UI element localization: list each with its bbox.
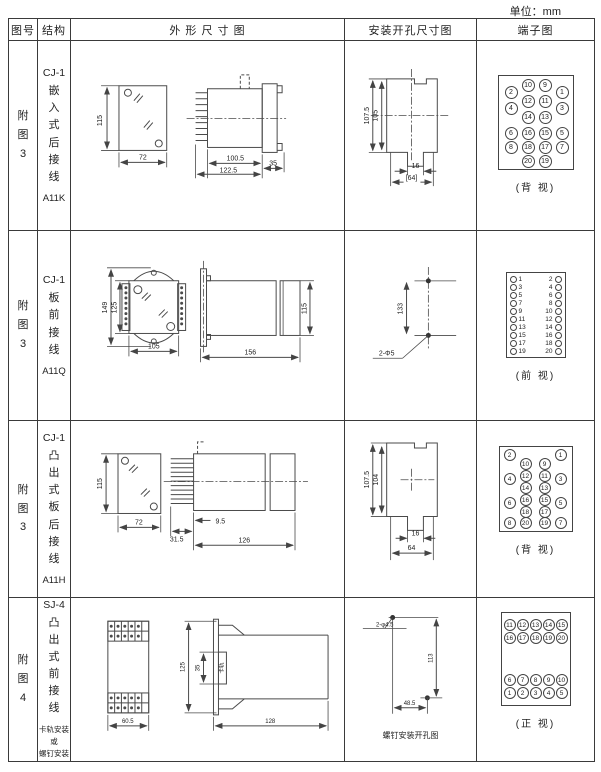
terminal-17: 17 <box>539 141 552 154</box>
side-view: 9.5 31.5 126 <box>164 442 308 550</box>
header-terminal: 端子图 <box>477 19 594 41</box>
mount-note: 卡轨安装 或 螺钉安装 <box>39 724 69 760</box>
side-view: 125 卡轨 35 128 <box>181 619 328 731</box>
front-view: 115 72 <box>97 454 161 533</box>
terminal-14: 14 <box>520 482 532 494</box>
dim-overall-width: 64 <box>408 545 416 552</box>
terminal-10: 10 <box>556 674 568 686</box>
dim-notch-width: 16 <box>412 163 420 170</box>
outline-drawing-a11k: 115 72 <box>71 41 344 230</box>
terminal-12: 12 <box>522 95 535 108</box>
terminal-4: 4 <box>504 473 516 485</box>
header-outline: 外 形 尺 寸 图 <box>71 19 345 41</box>
front-view: 149 125 105 <box>102 268 186 357</box>
terminal-cell-row3: 2110912114314131615651817820197 (背 视) <box>477 421 594 598</box>
front-view: 60.5 <box>108 621 149 731</box>
terminal-20: 20 <box>522 155 535 168</box>
terminal-diagram-front-view: 1234567891011121314151617181920 <box>506 272 566 358</box>
fig-no-row4: 附 图 4 <box>9 598 38 761</box>
terminal-pair: 56 <box>510 291 562 299</box>
dim-cutout-outer-h: 107.5 <box>364 471 371 489</box>
install-drawing-a11k: 107.5 105 16 [64] <box>345 41 476 230</box>
terminal-pair: 1516 <box>510 331 562 339</box>
outline-cell-row4: 60.5 125 卡轨 35 <box>71 598 345 761</box>
terminal-18: 18 <box>522 141 535 154</box>
terminal-9: 9 <box>543 674 555 686</box>
rail-label: 卡轨 <box>217 662 225 673</box>
terminal-20: 20 <box>556 632 568 644</box>
fig-no-row3: 附 图 3 <box>9 421 38 598</box>
terminal-19: 19 <box>539 517 551 529</box>
model-label: SJ-4 <box>43 599 65 611</box>
outline-drawing-sj4: 60.5 125 卡轨 35 <box>71 598 344 761</box>
terminal-4: 4 <box>543 687 555 699</box>
datasheet-page: 单位：mm 图号 结构 外 形 尺 寸 图 安装开孔尺寸图 端子图 附 图 3 … <box>0 0 601 772</box>
terminal-13: 13 <box>530 619 542 631</box>
terminal-3: 3 <box>530 687 542 699</box>
fig-no-row2: 附 图 3 <box>9 231 38 421</box>
dim-front-width: 105 <box>148 343 160 350</box>
terminal-15: 15 <box>539 494 551 506</box>
model-label: CJ-1 <box>43 274 65 286</box>
outline-cell-row2: 149 125 105 <box>71 231 345 421</box>
terminal-2: 2 <box>505 86 518 99</box>
terminal-2: 2 <box>504 449 516 461</box>
terminal-18: 18 <box>530 632 542 644</box>
outline-drawing-a11q: 149 125 105 <box>71 231 344 420</box>
terminal-pair: 910 <box>510 307 562 315</box>
dim-side-height: 115 <box>301 303 308 314</box>
terminal-5: 5 <box>556 687 568 699</box>
terminal-8: 8 <box>505 141 518 154</box>
hole-label: 2-Φ5 <box>379 350 395 357</box>
terminal-cell-row4: 1112131415161718192067891012345 (正 视) <box>477 598 594 761</box>
terminal-19: 19 <box>543 632 555 644</box>
install-cell-row3: 107.5 104 16 64 <box>345 421 477 598</box>
install-drawing-a11q: 133 2-Φ5 <box>345 231 476 420</box>
terminal-1: 1 <box>555 449 567 461</box>
structure-row3: CJ-1 凸 出 式 板 后 接 线 A11H <box>38 421 71 598</box>
terminal-pair: 34 <box>510 283 562 291</box>
dim-front-height: 115 <box>97 115 104 126</box>
outline-drawing-a11h: 115 72 9 <box>71 421 344 597</box>
structure-label: 凸 出 式 板 后 接 线 <box>49 448 60 567</box>
dim-front-width: 72 <box>135 519 143 526</box>
dim-hole-spacing: 133 <box>398 303 405 315</box>
dim-front-width: 60.5 <box>122 719 134 725</box>
dim-front-inner-h: 125 <box>111 302 118 314</box>
terminal-17: 17 <box>517 632 529 644</box>
dim-cutout-inner-h: 105 <box>373 110 380 122</box>
terminal-5: 5 <box>555 497 567 509</box>
dim-side-gap: 9.5 <box>215 518 225 525</box>
terminal-diagram-back-view: 1092112114314136161558181772019 <box>498 75 574 170</box>
dim-front-outer-h: 149 <box>102 302 109 314</box>
terminal-14: 14 <box>522 111 535 124</box>
terminal-caption: (背 视) <box>516 541 555 556</box>
outline-cell-row1: 115 72 <box>71 41 345 231</box>
dim-front-width: 72 <box>139 154 147 161</box>
side-view: 100.5 122.5 35 <box>187 75 286 178</box>
dim-side-inner: 35 <box>196 664 202 671</box>
terminal-pair: 12 <box>510 275 562 283</box>
terminal-7: 7 <box>555 517 567 529</box>
terminal-20: 20 <box>520 517 532 529</box>
terminal-8: 8 <box>504 517 516 529</box>
code-label: A11H <box>42 575 65 586</box>
dim-side-body: 100.5 <box>227 155 245 162</box>
code-label: A11Q <box>42 366 66 377</box>
terminal-pair: 78 <box>510 299 562 307</box>
terminal-11: 11 <box>539 470 551 482</box>
terminal-diagram-back-view: 2110912114314131615651817820197 <box>499 446 573 532</box>
terminal-11: 11 <box>504 619 516 631</box>
terminal-15: 15 <box>539 127 552 140</box>
terminal-13: 13 <box>539 111 552 124</box>
header-install: 安装开孔尺寸图 <box>345 19 477 41</box>
terminal-10: 10 <box>522 79 535 92</box>
terminal-12: 12 <box>520 470 532 482</box>
terminal-9: 9 <box>539 79 552 92</box>
terminal-6: 6 <box>504 497 516 509</box>
structure-label: 嵌 入 式 后 接 线 <box>49 83 60 185</box>
spec-table: 图号 结构 外 形 尺 寸 图 安装开孔尺寸图 端子图 附 图 3 CJ-1 嵌… <box>8 18 595 762</box>
terminal-16: 16 <box>504 632 516 644</box>
terminal-7: 7 <box>517 674 529 686</box>
terminal-10: 10 <box>520 458 532 470</box>
structure-row4: SJ-4 凸 出 式 前 接 线 卡轨安装 或 螺钉安装 <box>38 598 71 761</box>
model-label: CJ-1 <box>43 432 65 444</box>
unit-label: 单位：mm <box>510 3 561 19</box>
terminal-diagram-front-view: 1112131415161718192067891012345 <box>501 612 571 706</box>
terminal-2: 2 <box>517 687 529 699</box>
dim-notch-width: 16 <box>412 530 420 537</box>
dim-side-body: 126 <box>238 537 250 544</box>
terminal-caption: (前 视) <box>516 367 555 382</box>
terminal-19: 19 <box>539 155 552 168</box>
dim-horizontal: 48.5 <box>404 701 416 707</box>
terminal-8: 8 <box>530 674 542 686</box>
dim-side-total: 122.5 <box>220 167 238 174</box>
header-structure: 结构 <box>38 19 71 41</box>
terminal-12: 12 <box>517 619 529 631</box>
outline-cell-row3: 115 72 9 <box>71 421 345 598</box>
terminal-1: 1 <box>556 86 569 99</box>
terminal-4: 4 <box>505 102 518 115</box>
terminal-3: 3 <box>556 102 569 115</box>
hole-label: 2-φ4.5 <box>376 622 394 628</box>
terminal-16: 16 <box>520 494 532 506</box>
fig-no-row1: 附 图 3 <box>9 41 38 231</box>
dim-side-length: 156 <box>244 349 256 356</box>
front-view: 115 72 <box>97 86 167 168</box>
code-label: A11K <box>43 193 66 204</box>
terminal-pair: 1314 <box>510 323 562 331</box>
terminal-6: 6 <box>504 674 516 686</box>
terminal-9: 9 <box>539 458 551 470</box>
terminal-14: 14 <box>543 619 555 631</box>
terminal-pair: 1718 <box>510 339 562 347</box>
dim-side-pins: 31.5 <box>170 536 184 543</box>
terminal-1: 1 <box>504 687 516 699</box>
model-label: CJ-1 <box>43 67 65 79</box>
terminal-7: 7 <box>556 141 569 154</box>
terminal-5: 5 <box>556 127 569 140</box>
side-view: 115 156 <box>201 261 314 362</box>
structure-row1: CJ-1 嵌 入 式 后 接 线 A11K <box>38 41 71 231</box>
terminal-13: 13 <box>539 482 551 494</box>
terminal-11: 11 <box>539 95 552 108</box>
terminal-cell-row1: 1092112114314136161558181772019 (背 视) <box>477 41 594 231</box>
install-cell-row2: 133 2-Φ5 <box>345 231 477 421</box>
install-cell-row4: 2-φ4.5 113 48.5 螺钉安装开孔图 <box>345 598 477 761</box>
dim-side-length: 128 <box>265 719 276 725</box>
dim-cutout-outer-h: 107.5 <box>364 107 371 125</box>
terminal-cell-row2: 1234567891011121314151617181920 (前 视) <box>477 231 594 421</box>
dim-front-height: 115 <box>97 478 104 489</box>
terminal-16: 16 <box>522 127 535 140</box>
install-caption: 螺钉安装开孔图 <box>345 730 476 741</box>
structure-row2: CJ-1 板 前 接 线 A11Q <box>38 231 71 421</box>
terminal-pair: 1112 <box>510 315 562 323</box>
structure-label: 凸 出 式 前 接 线 <box>49 615 60 717</box>
terminal-pair: 1920 <box>510 347 562 355</box>
install-drawing-a11h: 107.5 104 16 64 <box>345 421 476 597</box>
structure-label: 板 前 接 线 <box>49 290 60 358</box>
terminal-6: 6 <box>505 127 518 140</box>
terminal-caption: (背 视) <box>516 179 555 194</box>
dim-side-height: 125 <box>181 661 187 672</box>
terminal-caption: (正 视) <box>516 715 555 730</box>
dim-cutout-inner-h: 104 <box>373 474 380 486</box>
header-fig-no: 图号 <box>9 19 38 41</box>
dim-overall-width: [64] <box>406 175 418 182</box>
dim-vertical: 113 <box>428 653 434 663</box>
terminal-3: 3 <box>555 473 567 485</box>
terminal-15: 15 <box>556 619 568 631</box>
dim-side-flange: 35 <box>269 160 277 167</box>
install-cell-row1: 107.5 105 16 [64] <box>345 41 477 231</box>
